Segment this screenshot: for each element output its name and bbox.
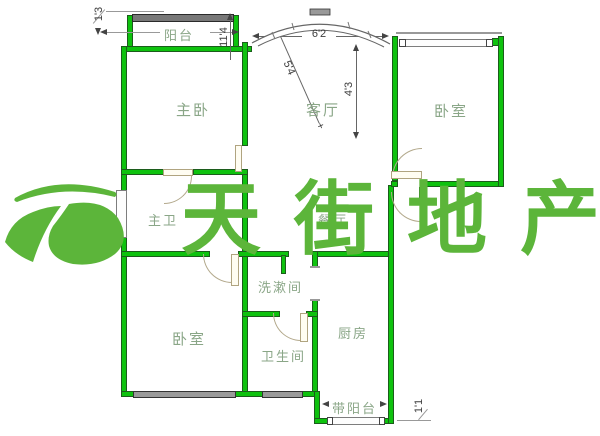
dim-bay-diagonal: 5'4 <box>277 50 302 86</box>
label-kitchen: 厨房 <box>338 323 368 342</box>
label-bathroom: 卫生间 <box>261 346 306 365</box>
wall-bedroom-right-topcorner <box>492 38 499 46</box>
dim-bbalcony-arrow-left <box>322 401 329 407</box>
wall-top-divider <box>121 46 252 52</box>
bay-window <box>244 3 396 49</box>
dim-balcony-arrow-right <box>232 29 239 35</box>
window-bedroom-right-sill <box>396 32 502 34</box>
dim-bay-arrow-right <box>382 33 389 39</box>
watermark-text: 天街地产 <box>181 172 600 268</box>
label-bedroom-right: 卧室 <box>434 100 468 121</box>
dim-bay-depth: 4'3 <box>343 74 355 104</box>
door-leaf-master-bedroom <box>235 145 242 172</box>
dim-balcony-arrow-up <box>227 13 233 20</box>
label-washroom: 洗漱间 <box>258 277 303 296</box>
window-bathroom-bottom <box>262 391 303 398</box>
window-bottom-balcony-end-right <box>379 417 385 425</box>
label-balcony-bottom: 带阳台 <box>332 398 377 417</box>
window-bedroom-left-bottom <box>133 391 236 398</box>
label-master-bath: 主卫 <box>148 210 178 229</box>
dim-top-left-line <box>106 11 164 12</box>
window-bottom-balcony-end-left <box>327 417 333 425</box>
door-jamb-kitchen-bottom <box>310 299 320 301</box>
wall-bedroom-right-right <box>498 36 504 187</box>
dim-balcony-arrow-left <box>100 29 107 35</box>
label-master-bedroom: 主卧 <box>176 99 210 120</box>
door-leaf-bathroom <box>300 313 308 342</box>
wall-center-spine-upper <box>242 42 248 146</box>
floor-plan-canvas: 阳台 主卧 客厅 卧室 主卫 餐厅 洗漱间 卧室 卫生间 厨房 带阳台 1'3 … <box>0 0 600 436</box>
dim-balcony-width: 11'4 <box>218 19 230 55</box>
dim-depth-line <box>356 46 357 134</box>
window-bottom-balcony <box>327 417 385 425</box>
door-arc-bathroom <box>273 313 301 341</box>
dim-balcony-line-left <box>104 32 160 33</box>
dim-diag-tick: + <box>312 118 328 134</box>
dim-top-left: 1'3 <box>93 0 105 29</box>
dim-bottom-offset: 1'1 <box>413 391 425 421</box>
dim-depth-arrow-down <box>353 132 359 139</box>
label-bedroom-left: 卧室 <box>172 328 206 349</box>
dim-balcony-vline <box>230 15 231 60</box>
agency-logo-icon <box>3 170 128 268</box>
dim-bay-arrow-left <box>252 33 259 39</box>
window-end-left <box>399 39 406 47</box>
dim-bay-width: 6'2 <box>304 28 334 40</box>
window-bedroom-right <box>399 39 493 47</box>
dim-depth-arrow-up <box>353 44 359 51</box>
window-end-right <box>486 39 493 47</box>
dim-bbalcony-arrow-right <box>380 401 387 407</box>
label-living-room: 客厅 <box>306 99 340 120</box>
label-balcony-top: 阳台 <box>164 25 194 44</box>
